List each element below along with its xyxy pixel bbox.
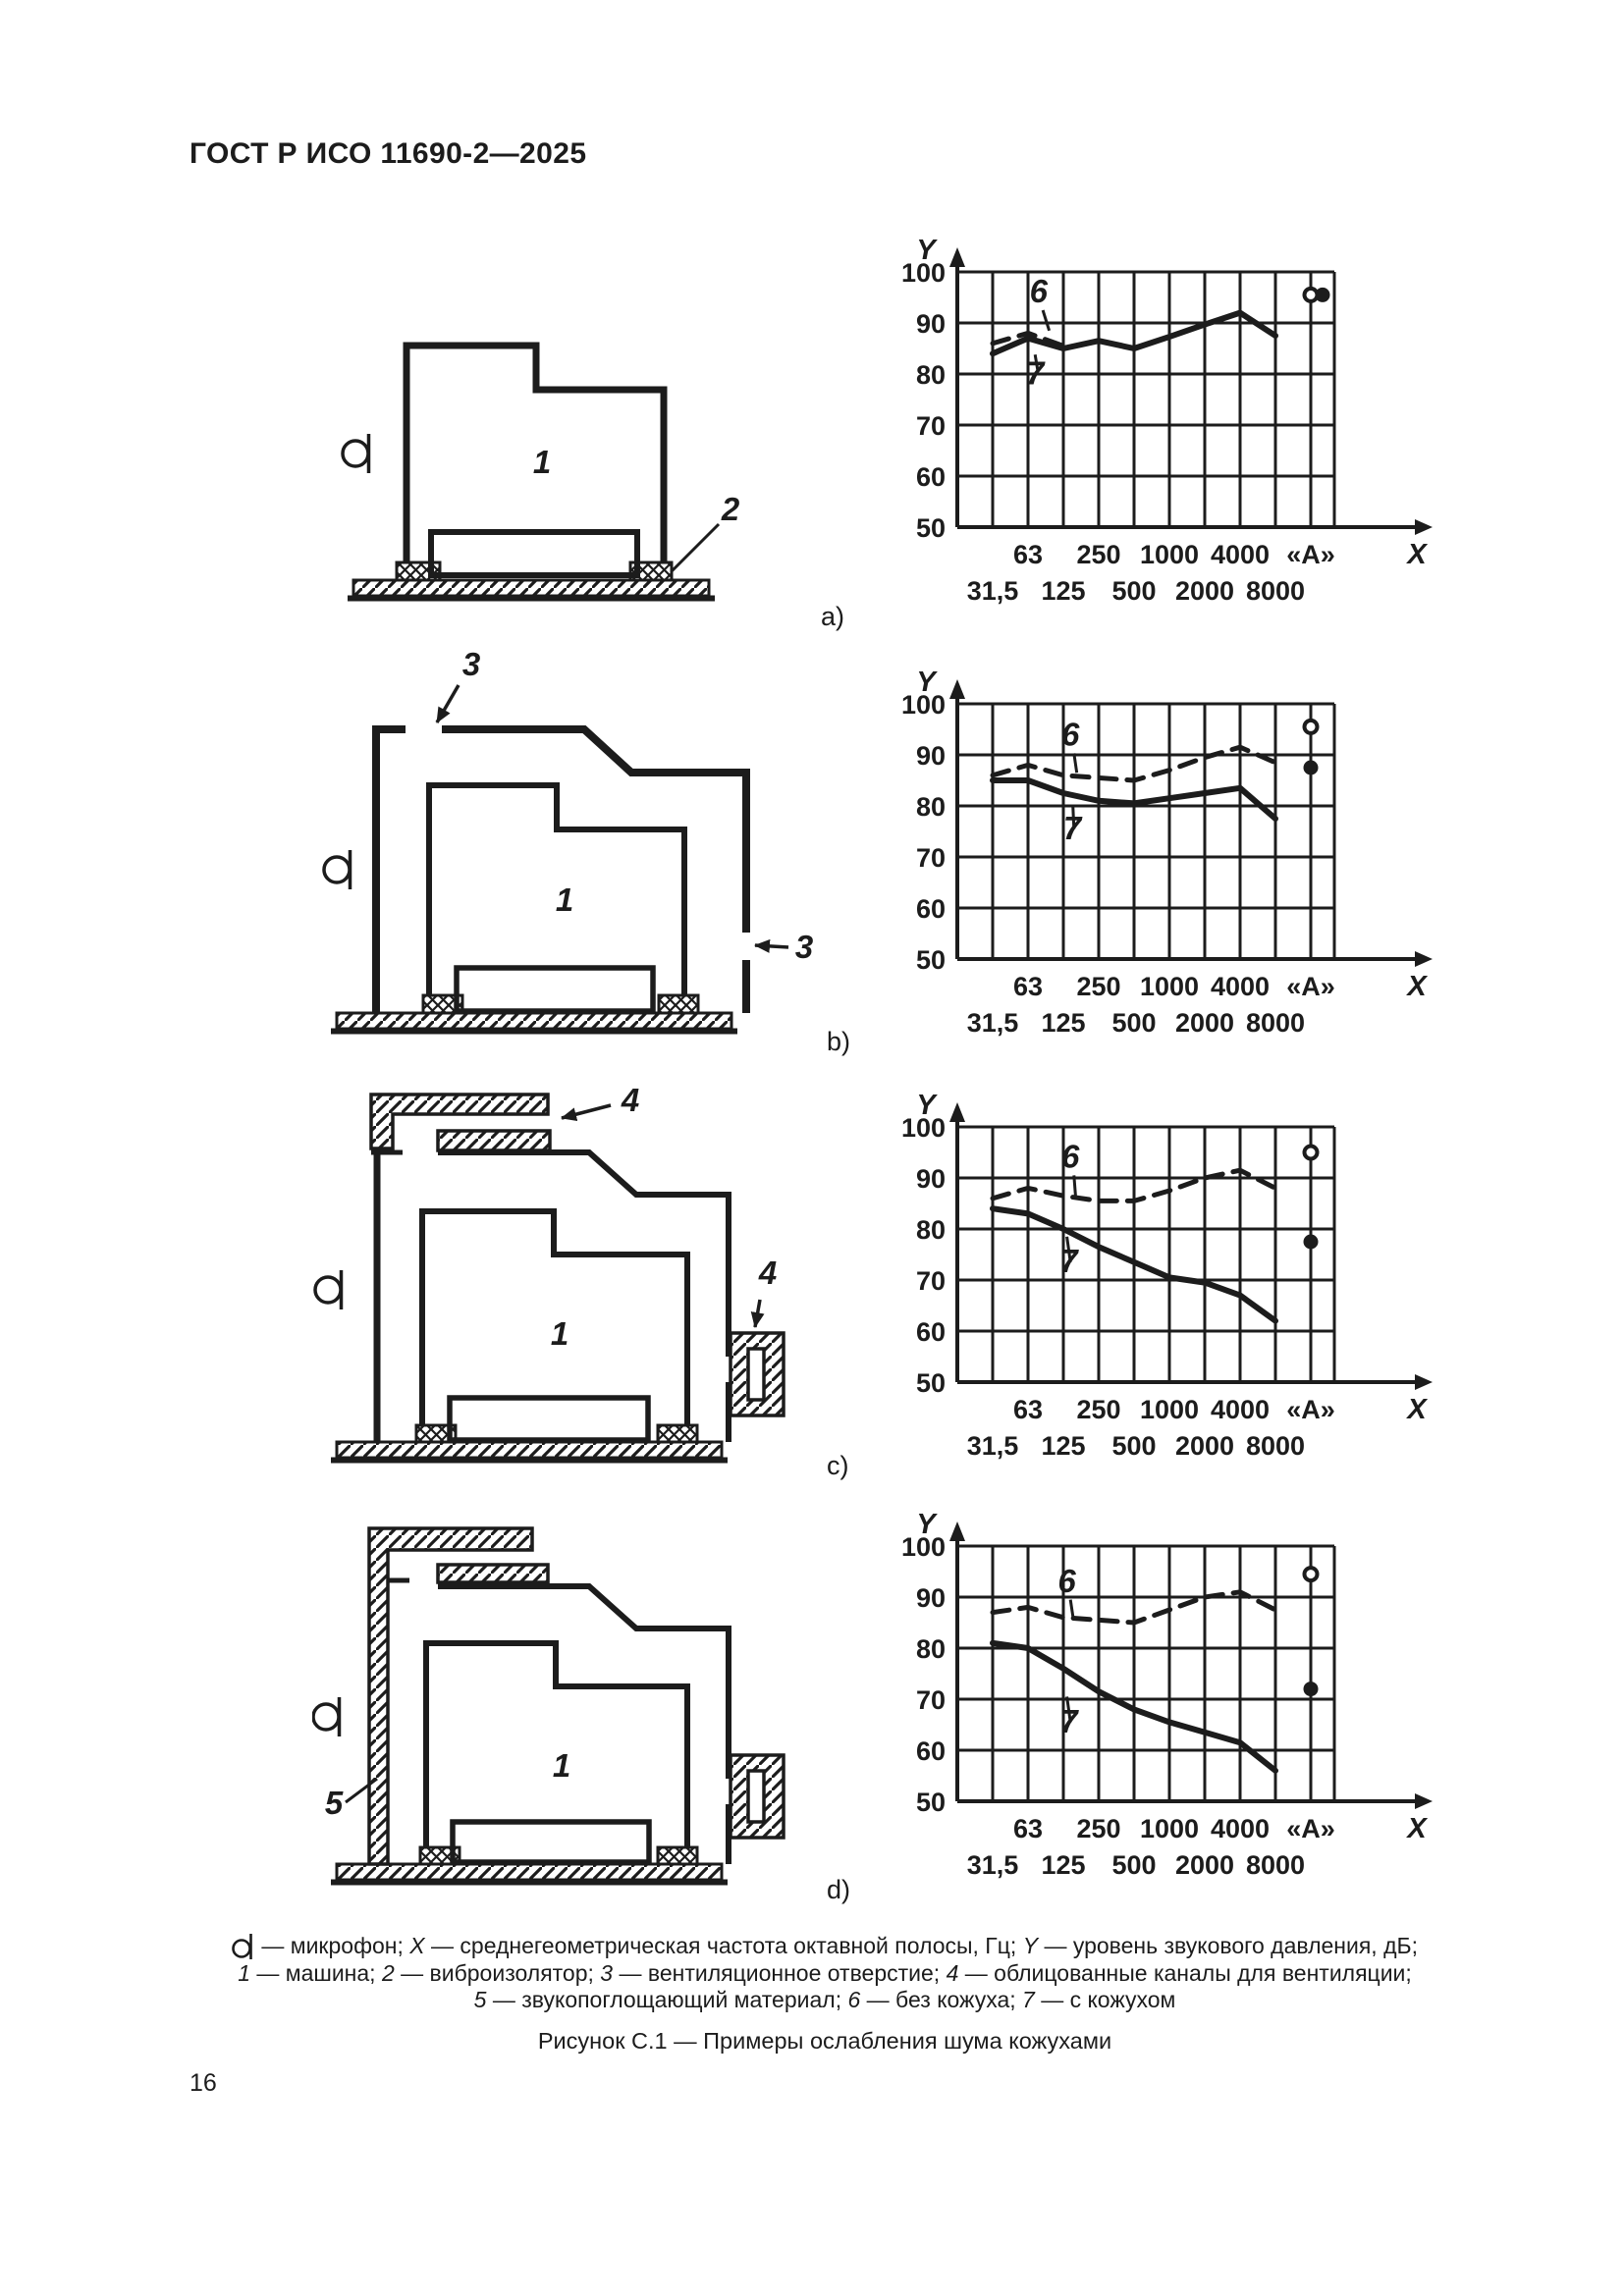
ground bbox=[337, 1864, 722, 1880]
svg-text:250: 250 bbox=[1076, 972, 1120, 1001]
sublabel-b: b) bbox=[827, 1027, 850, 1057]
svg-text:6: 6 bbox=[1061, 1139, 1080, 1175]
arrow-vent-top bbox=[437, 685, 459, 722]
chart-plot-b: 10090807060506325010004000«А»31,51255002… bbox=[889, 660, 1438, 1072]
svg-text:60: 60 bbox=[916, 894, 946, 924]
svg-text:80: 80 bbox=[916, 792, 946, 822]
machine-base bbox=[453, 1822, 649, 1862]
svg-text:4000: 4000 bbox=[1211, 1814, 1270, 1843]
svg-text:X: X bbox=[1405, 539, 1428, 570]
svg-text:500: 500 bbox=[1111, 576, 1156, 606]
svg-text:50: 50 bbox=[916, 1788, 946, 1817]
document-page: ГОСТ Р ИСО 11690-2—2025 1 2 bbox=[0, 0, 1624, 2296]
enclosure-top bbox=[438, 1152, 729, 1195]
chart-b: 10090807060506325010004000«А»31,51255002… bbox=[889, 660, 1438, 1072]
svg-text:80: 80 bbox=[916, 1215, 946, 1245]
machine-base bbox=[457, 968, 653, 1011]
arrow-duct-right bbox=[755, 1300, 760, 1327]
lined-baffle bbox=[438, 1565, 548, 1582]
svg-text:1000: 1000 bbox=[1140, 1395, 1199, 1424]
chart-a: 10090807060506325010004000«А»31,51255002… bbox=[889, 228, 1438, 640]
svg-text:31,5: 31,5 bbox=[967, 576, 1019, 606]
svg-text:31,5: 31,5 bbox=[967, 1850, 1019, 1880]
svg-text:90: 90 bbox=[916, 309, 946, 339]
svg-text:X: X bbox=[1405, 1813, 1428, 1844]
svg-text:63: 63 bbox=[1013, 1395, 1043, 1424]
chart-plot-d: 10090807060506325010004000«А»31,51255002… bbox=[889, 1502, 1438, 1914]
duct-label: 4 bbox=[758, 1255, 777, 1291]
microphone-icon bbox=[343, 434, 369, 473]
legend-line: — микрофон; X — среднегеометрическая час… bbox=[137, 1930, 1512, 1960]
svg-text:63: 63 bbox=[1013, 972, 1043, 1001]
svg-text:125: 125 bbox=[1041, 1008, 1085, 1038]
microphone-icon bbox=[315, 1270, 342, 1309]
absorber-label: 5 bbox=[325, 1785, 344, 1821]
microphone-icon bbox=[324, 850, 351, 889]
svg-text:«А»: «А» bbox=[1286, 972, 1335, 1001]
svg-text:70: 70 bbox=[916, 1266, 946, 1296]
svg-text:70: 70 bbox=[916, 1685, 946, 1715]
svg-text:X: X bbox=[1405, 971, 1428, 1002]
svg-text:6: 6 bbox=[1030, 273, 1049, 309]
figure-legend: — микрофон; X — среднегеометрическая час… bbox=[137, 1930, 1512, 2014]
microphone-icon bbox=[232, 1930, 255, 1959]
svg-text:50: 50 bbox=[916, 513, 946, 543]
svg-text:Y: Y bbox=[916, 235, 938, 266]
ground bbox=[337, 1013, 731, 1029]
diagram-c: 4 4 1 bbox=[312, 1062, 793, 1469]
svg-text:1000: 1000 bbox=[1140, 972, 1199, 1001]
svg-text:2000: 2000 bbox=[1175, 1850, 1234, 1880]
svg-text:500: 500 bbox=[1111, 1850, 1156, 1880]
svg-text:80: 80 bbox=[916, 1634, 946, 1664]
svg-text:Y: Y bbox=[916, 1090, 938, 1121]
machine-label: 1 bbox=[556, 881, 573, 918]
machine-base bbox=[450, 1398, 648, 1440]
vibration-isolator bbox=[658, 1425, 697, 1442]
page-number: 16 bbox=[189, 2069, 217, 2098]
ground bbox=[353, 580, 709, 596]
chart-c: 10090807060506325010004000«А»31,51255002… bbox=[889, 1083, 1438, 1495]
machine-label: 1 bbox=[553, 1747, 570, 1784]
vent-label: 3 bbox=[795, 929, 813, 965]
svg-text:60: 60 bbox=[916, 1317, 946, 1347]
microphone-icon bbox=[313, 1697, 340, 1736]
svg-text:4000: 4000 bbox=[1211, 972, 1270, 1001]
chart-d: 10090807060506325010004000«А»31,51255002… bbox=[889, 1502, 1438, 1914]
svg-text:90: 90 bbox=[916, 741, 946, 771]
svg-text:125: 125 bbox=[1041, 1850, 1085, 1880]
svg-text:1000: 1000 bbox=[1140, 540, 1199, 569]
svg-text:50: 50 bbox=[916, 945, 946, 975]
arrow-duct-top bbox=[562, 1105, 611, 1118]
vibration-isolator bbox=[630, 562, 672, 580]
svg-text:250: 250 bbox=[1076, 1395, 1120, 1424]
machine-outline bbox=[426, 1643, 687, 1847]
diagram-d: 5 1 bbox=[312, 1484, 793, 1895]
svg-text:6: 6 bbox=[1061, 717, 1080, 753]
svg-text:«А»: «А» bbox=[1286, 1395, 1335, 1424]
page-title: ГОСТ Р ИСО 11690-2—2025 bbox=[189, 137, 586, 171]
enclosure-top bbox=[438, 1586, 729, 1629]
svg-text:Y: Y bbox=[916, 667, 938, 698]
machine-label: 1 bbox=[551, 1315, 568, 1352]
svg-text:63: 63 bbox=[1013, 540, 1043, 569]
duct-slot bbox=[748, 1771, 764, 1822]
vibration-isolator bbox=[416, 1425, 456, 1442]
svg-text:2000: 2000 bbox=[1175, 1008, 1234, 1038]
duct-slot bbox=[748, 1349, 764, 1400]
figure-caption: Рисунок С.1 — Примеры ослабления шума ко… bbox=[137, 2028, 1512, 2055]
svg-text:Y: Y bbox=[916, 1509, 938, 1540]
svg-text:8000: 8000 bbox=[1246, 1431, 1305, 1461]
svg-text:80: 80 bbox=[916, 360, 946, 390]
svg-text:31,5: 31,5 bbox=[967, 1008, 1019, 1038]
vibration-isolator bbox=[420, 1847, 460, 1864]
svg-text:4000: 4000 bbox=[1211, 1395, 1270, 1424]
svg-text:50: 50 bbox=[916, 1368, 946, 1398]
vibration-isolator bbox=[659, 995, 698, 1013]
svg-text:70: 70 bbox=[916, 843, 946, 873]
svg-text:«А»: «А» bbox=[1286, 1814, 1335, 1843]
svg-text:8000: 8000 bbox=[1246, 576, 1305, 606]
svg-text:60: 60 bbox=[916, 1736, 946, 1766]
svg-text:2000: 2000 bbox=[1175, 1431, 1234, 1461]
svg-text:60: 60 bbox=[916, 462, 946, 492]
chart-plot-c: 10090807060506325010004000«А»31,51255002… bbox=[889, 1083, 1438, 1495]
svg-text:70: 70 bbox=[916, 411, 946, 441]
leader-line-isolator bbox=[672, 524, 719, 571]
lined-baffle bbox=[438, 1131, 550, 1150]
svg-text:6: 6 bbox=[1057, 1563, 1076, 1599]
svg-text:2000: 2000 bbox=[1175, 576, 1234, 606]
svg-text:125: 125 bbox=[1041, 1431, 1085, 1461]
svg-text:125: 125 bbox=[1041, 576, 1085, 606]
vent-label: 3 bbox=[462, 646, 480, 682]
svg-text:250: 250 bbox=[1076, 1814, 1120, 1843]
svg-text:X: X bbox=[1405, 1394, 1428, 1425]
sublabel-c: c) bbox=[827, 1451, 849, 1481]
vibration-isolator bbox=[423, 995, 462, 1013]
svg-text:4000: 4000 bbox=[1211, 540, 1270, 569]
svg-text:31,5: 31,5 bbox=[967, 1431, 1019, 1461]
svg-text:90: 90 bbox=[916, 1583, 946, 1613]
machine-base bbox=[431, 532, 637, 575]
machine-label: 1 bbox=[533, 444, 551, 480]
svg-text:8000: 8000 bbox=[1246, 1008, 1305, 1038]
diagram-a: 1 2 bbox=[324, 294, 756, 607]
svg-text:250: 250 bbox=[1076, 540, 1120, 569]
svg-text:500: 500 bbox=[1111, 1431, 1156, 1461]
diagram-b: 3 3 1 bbox=[319, 638, 820, 1042]
sublabel-a: a) bbox=[821, 602, 844, 632]
chart-plot-a: 10090807060506325010004000«А»31,51255002… bbox=[889, 228, 1438, 640]
svg-text:500: 500 bbox=[1111, 1008, 1156, 1038]
svg-text:8000: 8000 bbox=[1246, 1850, 1305, 1880]
vibration-isolator bbox=[397, 562, 440, 580]
isolator-label: 2 bbox=[721, 491, 740, 527]
arrow-vent-right bbox=[755, 945, 788, 947]
svg-text:63: 63 bbox=[1013, 1814, 1043, 1843]
sublabel-d: d) bbox=[827, 1875, 850, 1905]
legend-line: 5 — звукопоглощающий материал; 6 — без к… bbox=[137, 1987, 1512, 2014]
ground bbox=[337, 1442, 722, 1458]
vibration-isolator bbox=[658, 1847, 697, 1864]
svg-text:90: 90 bbox=[916, 1164, 946, 1194]
svg-text:«А»: «А» bbox=[1286, 540, 1335, 569]
duct-label: 4 bbox=[621, 1082, 639, 1118]
svg-text:1000: 1000 bbox=[1140, 1814, 1199, 1843]
legend-line: 1 — машина; 2 — виброизолятор; 3 — венти… bbox=[137, 1960, 1512, 1988]
